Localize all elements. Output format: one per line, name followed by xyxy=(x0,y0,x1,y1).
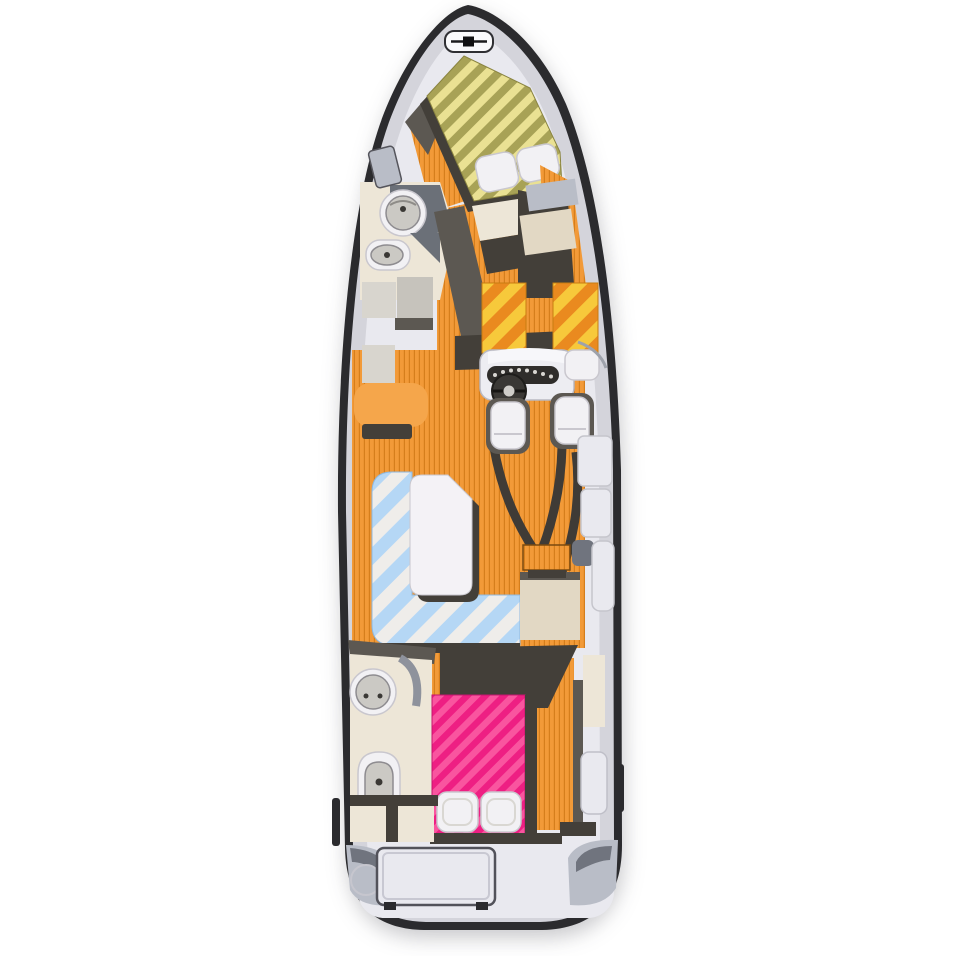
side-step xyxy=(581,489,611,537)
yacht-floor-plan xyxy=(0,0,956,956)
wheel-hub xyxy=(504,386,515,397)
port-rub-rail xyxy=(332,798,340,846)
starboard-rub-rail xyxy=(616,764,624,812)
galley-counter xyxy=(362,345,395,383)
aft-toilet-flush xyxy=(376,779,383,786)
aft-side-panel xyxy=(581,752,607,814)
wardrobe-panel xyxy=(519,209,576,256)
aft-sink-basin xyxy=(356,675,390,709)
port-bench xyxy=(354,383,428,427)
side-step xyxy=(578,436,612,486)
co-pilot-pad xyxy=(565,350,599,380)
forward-toilet-flush xyxy=(384,252,390,258)
helm-seat-left xyxy=(486,398,530,454)
stern-locker-divider xyxy=(386,800,398,842)
galley-counter xyxy=(397,277,433,319)
companionway-steps xyxy=(523,545,570,570)
step-riser xyxy=(528,570,566,578)
hatch-hinge-left xyxy=(384,902,396,910)
side-panel xyxy=(592,541,614,611)
aft-bed-shadow xyxy=(525,695,537,835)
companion-seat-pad-left xyxy=(482,283,526,353)
port-window-slot xyxy=(362,424,412,439)
stern-wall-segment xyxy=(560,822,596,836)
aft-wardrobe xyxy=(583,655,605,727)
aft-head xyxy=(348,640,436,798)
anchor-hatch-icon xyxy=(445,31,493,52)
galley-counter-edge xyxy=(395,318,433,330)
dinette-table xyxy=(410,475,472,595)
aft-head-rear-wall xyxy=(350,795,438,806)
companionway-landing xyxy=(520,580,580,640)
aft-sink-drain xyxy=(378,694,383,699)
companion-seat-pad-right xyxy=(553,283,598,356)
forward-sink-drain xyxy=(400,206,406,212)
hatch-hinge-right xyxy=(476,902,488,910)
floor-plan-canvas xyxy=(0,0,956,956)
engine-hatch xyxy=(377,848,495,905)
aft-sink-tap xyxy=(364,694,369,699)
side-pod xyxy=(572,540,594,566)
galley-counter xyxy=(362,282,396,318)
